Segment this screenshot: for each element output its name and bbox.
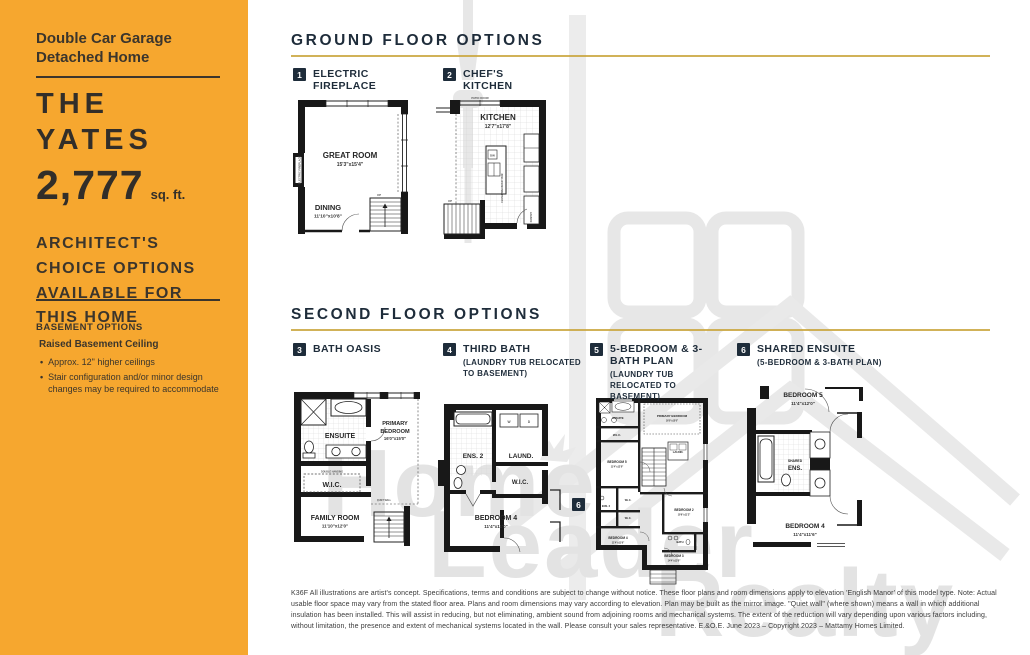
washer-label: W — [507, 420, 510, 424]
room-label-bedroom3: BEDROOM 3 — [664, 554, 684, 558]
room-dim-bedroom4: 11'4"x11'0" — [484, 524, 507, 529]
room-label-primary-1: PRIMARY — [382, 421, 408, 427]
option-chefs-kitchen: 2 CHEF'S KITCHEN — [443, 68, 525, 92]
breakfast-bar-label: FLUSH BREAKFAST BAR — [501, 173, 504, 202]
room-label-ens: ENS. — [788, 466, 802, 472]
architects-choice-note: ARCHITECT'S CHOICE OPTIONS AVAILABLE FOR… — [36, 232, 231, 331]
legal-disclaimer: K36F All illustrations are artist's conc… — [291, 589, 1007, 632]
room-label-family-room: FAMILY ROOM — [311, 515, 360, 522]
option-number-badge: 6 — [737, 343, 750, 356]
room-label-bedroom4: BEDROOM 4 — [475, 515, 518, 522]
option6-marker-on-plan: 6 — [572, 498, 585, 511]
sidebar-divider — [36, 299, 220, 301]
option-number-badge: 2 — [443, 68, 456, 81]
floorplan-electric-fireplace: ELECTRIC FIREPLACE GREAT ROOM 15'3"x15'4… — [290, 96, 418, 242]
home-type-subtitle: Double Car Garage Detached Home — [36, 30, 216, 68]
option-sublabel: (5-BEDROOM & 3-BATH PLAN) — [757, 358, 917, 369]
room-label-dining: DINING — [315, 203, 341, 212]
room-label-shared: SHARED — [788, 459, 803, 463]
bullet-text: Stair configuration and/or minor design … — [48, 371, 220, 395]
floorplan-bath-oasis: ENSUITE PRIMARY BEDROOM 16'0"x15'0" DOUB… — [288, 388, 426, 550]
room-label-wic1: W.I.C. — [613, 433, 621, 437]
room-dim-great-room: 15'3"x15'4" — [337, 162, 364, 168]
basement-bullet: • Approx. 12" higher ceilings — [40, 356, 220, 368]
area-value: 2,777 — [36, 162, 144, 208]
option-label: ELECTRIC FIREPLACE — [313, 68, 383, 92]
fireplace-label: ELECTRIC FIREPLACE — [298, 156, 302, 185]
option-third-bath: 4 THIRD BATH (LAUNDRY TUB RELOCATED TO B… — [443, 343, 581, 380]
quiet-wall-label: QUIET WALL — [377, 499, 392, 502]
room-label-primary: PRIMARY BEDROOM — [657, 414, 688, 418]
room-dim-bedroom5: 11'4"x12'0" — [791, 401, 815, 406]
room-label-bedroom4: BEDROOM 4 — [608, 536, 628, 540]
room-dim-bedroom4: 11'4"x11'6" — [793, 532, 816, 537]
option-5-bedroom-3-bath: 5 5-BEDROOM & 3-BATH PLAN (LAUNDRY TUB R… — [590, 343, 710, 403]
room-dim-dining: 11'10"x10'8" — [314, 214, 342, 220]
floorplan-shared-ensuite: BEDROOM 5 11'4"x12'0" SHARED ENS. BEDROO… — [733, 384, 869, 550]
room-label-laundry: LAUND. — [673, 450, 684, 454]
ground-floor-options-title: GROUND FLOOR OPTIONS — [291, 32, 545, 50]
floorplan-chefs-kitchen: PATIO DOOR KITCHEN 12'7"x17'8" DW FLUSH … — [436, 92, 568, 244]
room-label-bedroom5: BEDROOM 5 — [607, 460, 627, 464]
option-bath-oasis: 3 BATH OASIS — [293, 343, 423, 356]
dishwasher-label: DW — [490, 154, 495, 158]
sidebar-divider — [36, 76, 220, 78]
bullet-icon: • — [40, 356, 43, 368]
option-label: 5-BEDROOM & 3-BATH PLAN — [610, 343, 710, 367]
option-number-badge: 6 — [572, 498, 585, 511]
section-rule — [291, 55, 990, 57]
pantry-label: PANTRY — [529, 212, 533, 223]
option-sublabel: (LAUNDRY TUB RELOCATED TO BASEMENT) — [463, 358, 581, 380]
bullet-text: Approx. 12" higher ceilings — [48, 356, 155, 368]
brochure-page: Home Leader Realty Double Car Garage Det… — [0, 0, 1030, 655]
option-number-badge: 1 — [293, 68, 306, 81]
room-label-bedroom4: BEDROOM 4 — [785, 523, 825, 530]
model-name-line1: THE — [36, 86, 153, 122]
room-dim-primary: 16'0"x15'0" — [666, 421, 678, 423]
room-label-wic2: W.I.C. — [625, 499, 632, 502]
room-label-wic: W.I.C. — [512, 480, 529, 486]
room-label-ens2: ENS. 2 — [463, 453, 484, 460]
option-shared-ensuite: 6 SHARED ENSUITE (5-BEDROOM & 3-BATH PLA… — [737, 343, 917, 369]
double-hanging-label: DOUBLE HANGING — [321, 471, 343, 474]
room-dim-primary: 16'0"x15'0" — [384, 436, 406, 441]
basement-feature: Raised Basement Ceiling — [39, 339, 158, 350]
room-label-bedroom2: BEDROOM 2 — [674, 508, 694, 512]
option-number-badge: 4 — [443, 343, 456, 356]
room-label-kitchen: KITCHEN — [480, 113, 516, 122]
room-dim-family-room: 11'10"x12'0" — [322, 524, 348, 529]
option-label: SHARED ENSUITE — [757, 343, 917, 355]
second-floor-options-title: SECOND FLOOR OPTIONS — [291, 306, 542, 324]
area-unit: sq. ft. — [151, 187, 186, 202]
room-label-wic3: W.I.C. — [625, 517, 632, 520]
floorplan-third-bath: W D ENS. 2 LAUND. W.I.C. BEDROOM 4 11'4"… — [436, 398, 566, 564]
room-label-ensuite: ENSUITE — [612, 416, 624, 420]
basement-bullet: • Stair configuration and/or minor desig… — [40, 371, 220, 395]
room-dim-bedroom2: 10'6"x11'2" — [678, 514, 691, 517]
room-label-bath: BATH — [676, 540, 683, 544]
room-label-great-room: GREAT ROOM — [323, 151, 378, 160]
model-name-line2: YATES — [36, 122, 153, 158]
room-label-bedroom5: BEDROOM 5 — [783, 392, 823, 399]
room-label-wic: W.I.C. — [322, 482, 341, 489]
room-label-laundry: LAUND. — [509, 453, 534, 460]
bullet-icon: • — [40, 371, 43, 395]
option-label: THIRD BATH — [463, 343, 581, 355]
option-label: CHEF'S KITCHEN — [463, 68, 525, 92]
patio-door-label: PATIO DOOR — [471, 96, 488, 100]
option-number-badge: 3 — [293, 343, 306, 356]
sidebar: Double Car Garage Detached Home THE YATE… — [0, 0, 248, 655]
room-dim-bedroom5: 11'4"x12'0" — [611, 466, 624, 469]
basement-options-title: BASEMENT OPTIONS — [36, 322, 143, 333]
room-label-ens2: ENS. 2 — [602, 504, 611, 508]
section-rule — [291, 329, 990, 331]
room-dim-kitchen: 12'7"x17'8" — [485, 124, 512, 130]
model-name: THE YATES — [36, 86, 153, 159]
room-label-primary-2: BEDROOM — [380, 429, 410, 435]
option-sublabel: (LAUNDRY TUB RELOCATED TO BASEMENT) — [610, 370, 710, 402]
floorplan-5-bedroom-3-bath: ENSUITE W.I.C. PRIMARY BEDROOM 16'0"x15'… — [584, 392, 724, 590]
stairs-up-label: UP — [377, 193, 381, 197]
square-footage: 2,777sq. ft. — [36, 162, 185, 209]
stairs-up-label: UP — [448, 199, 452, 203]
option-label: BATH OASIS — [313, 343, 423, 355]
option-number-badge: 5 — [590, 343, 603, 356]
room-dim-bedroom3: 14'4"x13'0" — [668, 560, 681, 563]
room-label-ensuite: ENSUITE — [325, 433, 356, 440]
option-electric-fireplace: 1 ELECTRIC FIREPLACE — [293, 68, 383, 92]
room-dim-bedroom4: 11'4"x11'6" — [612, 542, 624, 545]
